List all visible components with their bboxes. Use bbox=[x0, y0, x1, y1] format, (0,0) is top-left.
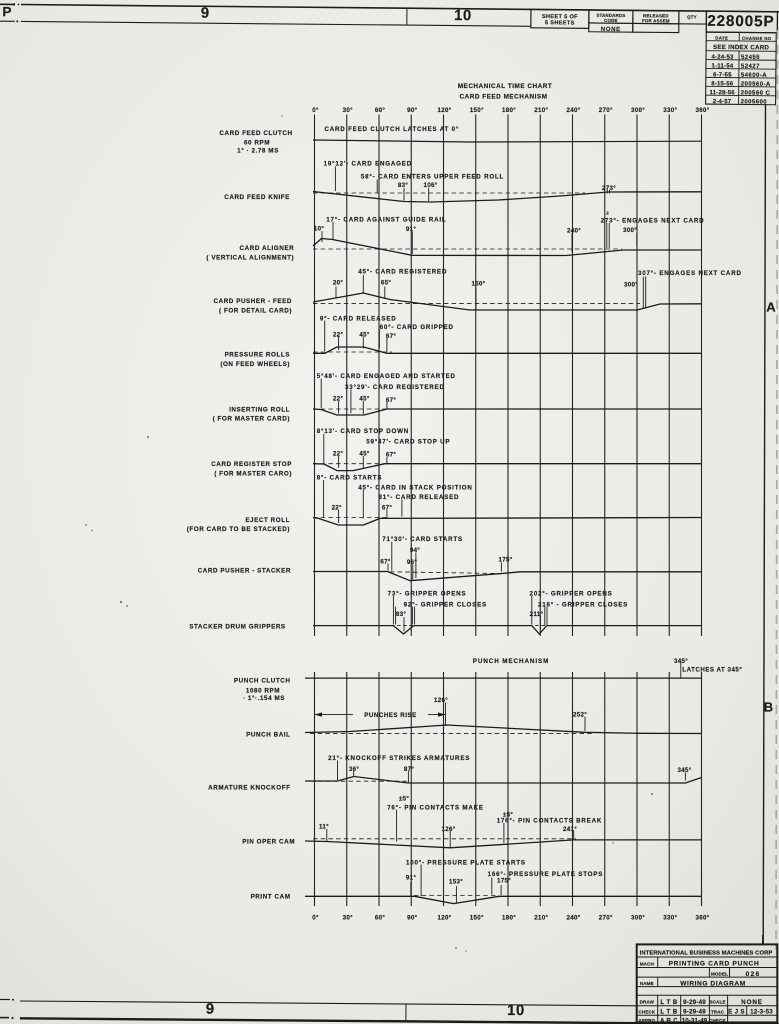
svg-text:76°- PIN CONTACTS MAKE: 76°- PIN CONTACTS MAKE bbox=[387, 805, 484, 812]
svg-text:45°- CARD IN STACK POSITION: 45°- CARD IN STACK POSITION bbox=[358, 484, 472, 491]
svg-text:L T B: L T B bbox=[660, 999, 677, 1006]
svg-text:2-4-57: 2-4-57 bbox=[713, 99, 732, 105]
svg-text:22°: 22° bbox=[332, 504, 342, 511]
svg-text:CARD REGISTER STOP: CARD REGISTER STOP bbox=[211, 461, 292, 468]
svg-text:91°: 91° bbox=[406, 875, 416, 882]
svg-text:· 1°·.154 MS: · 1°·.154 MS bbox=[243, 694, 285, 702]
svg-text:360°: 360° bbox=[696, 914, 710, 921]
svg-text:87°: 87° bbox=[404, 766, 414, 773]
svg-text:73°- GRIPPER OPENS: 73°- GRIPPER OPENS bbox=[388, 591, 467, 598]
svg-text:ARMATURE KNOCKOFF: ARMATURE KNOCKOFF bbox=[208, 784, 290, 791]
svg-text:180°: 180° bbox=[502, 914, 516, 921]
svg-text:60°- CARD GRIPPED: 60°- CARD GRIPPED bbox=[380, 324, 454, 331]
svg-text:8-15-56: 8-15-56 bbox=[711, 81, 734, 87]
svg-text:200560-A: 200560-A bbox=[741, 81, 771, 87]
svg-text:150°: 150° bbox=[472, 281, 486, 288]
svg-text:8°13'- CARD STOP DOWN: 8°13'- CARD STOP DOWN bbox=[317, 428, 409, 435]
svg-text:83°: 83° bbox=[396, 611, 406, 618]
svg-text:90°: 90° bbox=[407, 914, 417, 921]
svg-text:20°: 20° bbox=[333, 279, 343, 286]
svg-text:180°: 180° bbox=[502, 107, 516, 114]
svg-text:B: B bbox=[764, 699, 773, 714]
svg-text:5 SHEETS: 5 SHEETS bbox=[545, 20, 575, 26]
svg-text:PUNCH BAIL: PUNCH BAIL bbox=[246, 731, 290, 738]
svg-text:1° · 2.78 MS: 1° · 2.78 MS bbox=[237, 147, 279, 155]
svg-text:PUNCHES RISE: PUNCHES RISE bbox=[364, 712, 416, 719]
svg-text:0°: 0° bbox=[312, 107, 319, 114]
svg-text:300°: 300° bbox=[631, 914, 645, 921]
svg-text:126°: 126° bbox=[434, 697, 448, 704]
svg-text:45°: 45° bbox=[359, 331, 369, 338]
svg-text:026: 026 bbox=[746, 971, 761, 978]
svg-text:360°: 360° bbox=[696, 107, 710, 114]
svg-text:SCALE: SCALE bbox=[709, 1000, 725, 1005]
svg-text:330°: 330° bbox=[663, 107, 677, 114]
svg-text:TRAC: TRAC bbox=[711, 1009, 725, 1014]
svg-text:12-3-53: 12-3-53 bbox=[750, 1009, 773, 1016]
svg-text:241°: 241° bbox=[563, 826, 577, 833]
svg-text:300°: 300° bbox=[624, 282, 638, 289]
svg-text:300°: 300° bbox=[631, 107, 645, 114]
svg-text:PUNCH MECHANISM: PUNCH MECHANISM bbox=[473, 658, 549, 665]
svg-text:60°: 60° bbox=[375, 914, 385, 921]
svg-text:65°: 65° bbox=[381, 279, 391, 286]
svg-text:45°- CARD REGISTERED: 45°- CARD REGISTERED bbox=[358, 269, 447, 276]
svg-text:67°: 67° bbox=[380, 559, 390, 566]
svg-text:9-29-49: 9-29-49 bbox=[683, 1009, 706, 1016]
svg-text:175°: 175° bbox=[497, 878, 511, 885]
svg-text:92°- GRIPPER CLOSES: 92°- GRIPPER CLOSES bbox=[404, 602, 487, 609]
svg-text:22°: 22° bbox=[333, 396, 343, 403]
svg-text:10: 10 bbox=[454, 7, 472, 24]
svg-text:1080 RPM: 1080 RPM bbox=[246, 687, 280, 694]
svg-text:NAME: NAME bbox=[640, 981, 654, 986]
svg-text:P: P bbox=[2, 4, 11, 19]
svg-text:10°: 10° bbox=[314, 225, 324, 232]
svg-text:±5°: ±5° bbox=[399, 796, 409, 803]
svg-text:LATCHES AT 345°: LATCHES AT 345° bbox=[682, 667, 742, 674]
svg-text:CODE: CODE bbox=[604, 18, 618, 23]
svg-text:153°: 153° bbox=[449, 878, 463, 885]
svg-text:EJECT ROLL: EJECT ROLL bbox=[245, 517, 290, 524]
svg-text:( FOR MASTER CARO): ( FOR MASTER CARO) bbox=[214, 470, 292, 477]
svg-text:216° - GRIPPER CLOSES: 216° - GRIPPER CLOSES bbox=[538, 602, 628, 609]
svg-text:STACKER DRUM GRIPPERS: STACKER DRUM GRIPPERS bbox=[189, 623, 285, 630]
svg-text:81°- CARD RELEASED: 81°- CARD RELEASED bbox=[379, 494, 460, 501]
svg-text:NONE: NONE bbox=[741, 999, 763, 1006]
svg-text:( FOR MASTER CARD): ( FOR MASTER CARD) bbox=[213, 416, 290, 423]
svg-text:60 RPM: 60 RPM bbox=[244, 139, 270, 146]
svg-text:21°- KNOCKOFF STRIKES ARMATURE: 21°- KNOCKOFF STRIKES ARMATURES bbox=[328, 755, 470, 762]
svg-text:11°: 11° bbox=[319, 824, 329, 831]
svg-text:273°- ENGAGES NEXT CARD: 273°- ENGAGES NEXT CARD bbox=[601, 217, 705, 224]
svg-text:CHECK: CHECK bbox=[709, 1018, 726, 1023]
svg-text:INTERNATIONAL BUSINESS MACHINE: INTERNATIONAL BUSINESS MACHINES CORP bbox=[640, 950, 773, 956]
svg-text:1-11-54: 1-11-54 bbox=[712, 63, 734, 69]
svg-text:9: 9 bbox=[206, 1001, 214, 1018]
svg-text:CARD FEED KNIFE: CARD FEED KNIFE bbox=[224, 194, 290, 201]
svg-text:DRAW: DRAW bbox=[640, 1000, 655, 1005]
svg-text:30°: 30° bbox=[343, 914, 353, 921]
svg-text:QTY: QTY bbox=[687, 14, 697, 19]
svg-text:(ON FEED WHEELS): (ON FEED WHEELS) bbox=[220, 361, 290, 368]
svg-text:58°- CARD ENTERS UPPER FEED RO: 58°- CARD ENTERS UPPER FEED ROLL bbox=[361, 174, 504, 181]
svg-text:67°: 67° bbox=[386, 397, 396, 404]
svg-text:PUNCH CLUTCH: PUNCH CLUTCH bbox=[234, 678, 291, 685]
svg-text:19°12'- CARD ENGAGED: 19°12'- CARD ENGAGED bbox=[324, 160, 412, 167]
svg-text:CARD FEED CLUTCH: CARD FEED CLUTCH bbox=[219, 130, 292, 137]
svg-text:PRINTING CARD PUNCH: PRINTING CARD PUNCH bbox=[669, 961, 760, 968]
svg-text:8°- CARD STARTS: 8°- CARD STARTS bbox=[317, 475, 383, 482]
svg-text:150°: 150° bbox=[470, 914, 484, 921]
svg-text:PRESSURE ROLLS: PRESSURE ROLLS bbox=[225, 352, 290, 359]
svg-text:126°: 126° bbox=[442, 826, 456, 833]
svg-text:210°: 210° bbox=[534, 914, 548, 921]
svg-text:59°47'- CARD STOP UP: 59°47'- CARD STOP UP bbox=[366, 439, 450, 446]
svg-text:FOR ASSEM: FOR ASSEM bbox=[642, 18, 670, 23]
svg-text:345°: 345° bbox=[678, 767, 692, 774]
svg-text:90°: 90° bbox=[407, 107, 417, 114]
svg-text:176°- PIN CONTACTS BREAK: 176°- PIN CONTACTS BREAK bbox=[497, 818, 602, 825]
svg-text:0°: 0° bbox=[312, 914, 319, 921]
svg-text:9-29-49: 9-29-49 bbox=[683, 999, 706, 1006]
svg-text:150°: 150° bbox=[470, 107, 484, 114]
svg-text:300°: 300° bbox=[623, 227, 637, 234]
svg-text:67°: 67° bbox=[386, 451, 396, 458]
svg-text:17°- CARD AGAINST GUIDE RAIL: 17°- CARD AGAINST GUIDE RAIL bbox=[326, 217, 446, 224]
svg-text:307°- ENGAGES NEXT CARD: 307°- ENGAGES NEXT CARD bbox=[638, 270, 742, 277]
svg-text:71°30'- CARD STARTS: 71°30'- CARD STARTS bbox=[382, 536, 463, 543]
svg-text:45°: 45° bbox=[359, 450, 369, 457]
svg-text:273°: 273° bbox=[602, 185, 616, 192]
svg-text:175°: 175° bbox=[499, 557, 513, 564]
svg-text:CARD FEED CLUTCH LATCHES AT 0°: CARD FEED CLUTCH LATCHES AT 0° bbox=[325, 126, 460, 133]
svg-text:CARD PUSHER - STACKER: CARD PUSHER - STACKER bbox=[198, 568, 291, 575]
svg-text:33°29'- CARD REGISTERED: 33°29'- CARD REGISTERED bbox=[345, 384, 445, 391]
svg-text:202°- GRIPPER OPENS: 202°- GRIPPER OPENS bbox=[530, 591, 613, 598]
svg-text:240°: 240° bbox=[567, 914, 581, 921]
svg-text:270°: 270° bbox=[599, 914, 613, 921]
svg-text:CARD ALIGNER: CARD ALIGNER bbox=[240, 245, 295, 252]
svg-text:200560 C: 200560 C bbox=[741, 90, 771, 96]
svg-text:9°- CARD RELEASED: 9°- CARD RELEASED bbox=[320, 315, 397, 322]
svg-text:22°: 22° bbox=[333, 450, 343, 457]
svg-text:E J S: E J S bbox=[728, 1009, 745, 1016]
svg-text:52455: 52455 bbox=[741, 55, 760, 61]
svg-text:CHANGE NO: CHANGE NO bbox=[742, 36, 772, 41]
svg-text:A: A bbox=[766, 299, 776, 314]
svg-text:94°: 94° bbox=[410, 547, 420, 554]
svg-text:83°: 83° bbox=[398, 182, 408, 189]
svg-text:L T B: L T B bbox=[660, 1009, 677, 1016]
svg-text:4-24-53: 4-24-53 bbox=[711, 55, 734, 61]
svg-text:30°: 30° bbox=[343, 107, 353, 114]
svg-text:( VERTICAL ALIGNMENT): ( VERTICAL ALIGNMENT) bbox=[206, 254, 294, 261]
svg-text:MECHANICAL TIME CHART: MECHANICAL TIME CHART bbox=[458, 83, 553, 90]
svg-text:6-7-55: 6-7-55 bbox=[713, 72, 732, 78]
svg-text:91°: 91° bbox=[406, 226, 416, 233]
svg-text:9: 9 bbox=[201, 5, 210, 22]
svg-text:67°: 67° bbox=[386, 333, 396, 340]
svg-text:120°: 120° bbox=[438, 107, 452, 114]
svg-text:(FOR CARD TO BE STACKED): (FOR CARD TO BE STACKED) bbox=[187, 526, 290, 533]
svg-text:DATE: DATE bbox=[715, 36, 728, 41]
svg-text:CARD FEED MECHANISM: CARD FEED MECHANISM bbox=[460, 93, 548, 100]
svg-text:52427: 52427 bbox=[741, 64, 760, 70]
svg-text:SEE INDEX CARD: SEE INDEX CARD bbox=[713, 44, 769, 52]
svg-text:60°: 60° bbox=[375, 107, 385, 114]
svg-text:INSERTING ROLL: INSERTING ROLL bbox=[229, 406, 290, 413]
svg-text:PRINT CAM: PRINT CAM bbox=[251, 894, 291, 901]
svg-text:270°: 270° bbox=[599, 107, 613, 114]
svg-text:120°: 120° bbox=[438, 914, 452, 921]
svg-text:PIN OPER CAM: PIN OPER CAM bbox=[242, 839, 295, 846]
svg-text:210°: 210° bbox=[534, 107, 548, 114]
svg-text:11-28-56: 11-28-56 bbox=[710, 90, 736, 96]
svg-text:106°: 106° bbox=[424, 182, 438, 189]
svg-text:100°- PRESSURE PLATE STARTS: 100°- PRESSURE PLATE STARTS bbox=[406, 860, 526, 867]
svg-text:NONE: NONE bbox=[601, 27, 621, 33]
svg-text:WIRING DIAGRAM: WIRING DIAGRAM bbox=[680, 980, 746, 987]
svg-text:CHECK: CHECK bbox=[638, 1009, 655, 1014]
svg-text:5°48'- CARD ENGAGED AND STARTE: 5°48'- CARD ENGAGED AND STARTED bbox=[317, 373, 456, 380]
svg-text:228005P: 228005P bbox=[707, 13, 774, 31]
svg-text:2005600: 2005600 bbox=[741, 99, 768, 105]
svg-text:MACH: MACH bbox=[640, 961, 655, 966]
svg-text:CARD PUSHER - FEED: CARD PUSHER - FEED bbox=[214, 298, 292, 305]
svg-text:MODEL: MODEL bbox=[711, 971, 728, 976]
svg-text:22°: 22° bbox=[333, 331, 343, 338]
svg-text:45°: 45° bbox=[359, 396, 369, 403]
svg-text:54600-A: 54600-A bbox=[741, 73, 767, 79]
svg-text:240°: 240° bbox=[567, 227, 581, 234]
svg-text:( FOR DETAIL CARD): ( FOR DETAIL CARD) bbox=[219, 307, 292, 314]
svg-text:240°: 240° bbox=[567, 107, 581, 114]
svg-text:330°: 330° bbox=[663, 914, 677, 921]
svg-text:10: 10 bbox=[507, 1002, 525, 1019]
